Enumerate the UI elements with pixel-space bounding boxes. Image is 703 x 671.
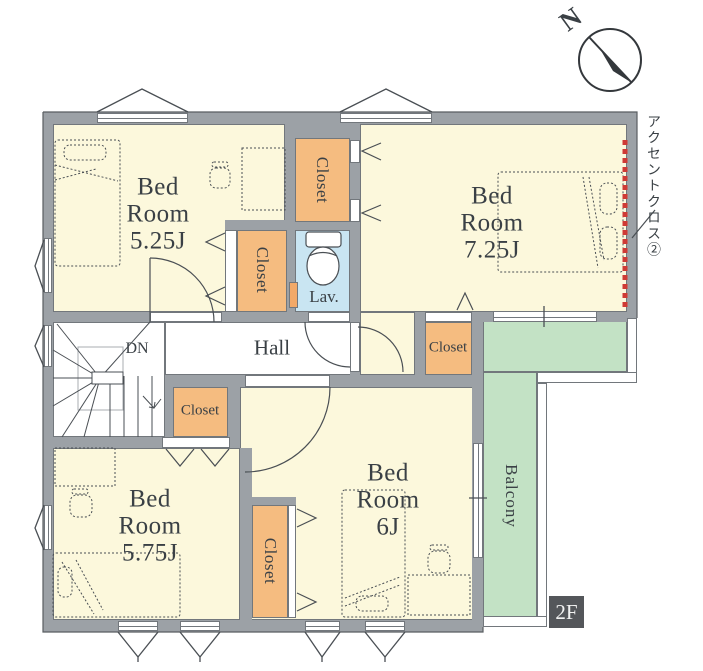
closet-label-bedroom-d: Closet [260,538,280,584]
bedroom-b-line2: Room [460,210,523,237]
closet-label-north-middle: Closet [312,157,332,203]
bedroom-d-line1: Bed [356,460,419,487]
bedroom-c-size: 5.75J [118,540,181,567]
bedroom-a-size: 5.25J [126,228,189,255]
closet-label-bedroom-b: Closet [429,340,467,357]
desk-icon-bedroom-a [210,148,285,210]
desk-icon-bedroom-d [408,545,470,615]
floor-badge: 2F [549,596,584,628]
closet-door-marks [166,143,473,611]
bedroom-a-line2: Room [126,201,189,228]
floor-plan-canvas: N Bed Room 5.25J Bed Room 7.25J Bed Room… [0,0,703,671]
bedroom-d-door-arc [245,387,330,472]
bedroom-b-label: Bed Room 7.25J [460,183,523,264]
bedroom-c-line2: Room [118,513,181,540]
bedroom-d-label: Bed Room 6J [356,460,419,541]
bedroom-a-door-arc [150,258,214,322]
bedroom-b-line1: Bed [460,183,523,210]
compass-icon [579,29,641,91]
stairs-dn-label: DN [125,340,148,358]
bedroom-b-size: 7.25J [460,237,523,264]
door-arcs [150,258,403,472]
bedroom-a-line1: Bed [126,174,189,201]
balcony-label: Balcony [501,464,521,528]
bedroom-c-line1: Bed [118,486,181,513]
bedroom-a-label: Bed Room 5.25J [126,174,189,255]
bedroom-d-size: 6J [356,514,419,541]
bedroom-b-door-arc [358,327,403,372]
hall-label: Hall [254,336,290,361]
desk-icon-bedroom-c [55,448,115,517]
floorplan-linework [0,0,703,671]
accent-cross-annotation: アクセントクロス② [645,114,659,349]
closet-label-bedroom-a: Closet [252,247,272,293]
closet-label-hall: Closet [181,403,219,420]
lavatory-label: Lav. [309,287,339,307]
bedroom-c-label: Bed Room 5.75J [118,486,181,567]
bed-icon-bedroom-a [55,140,120,266]
bedroom-d-line2: Room [356,487,419,514]
toilet-icon [306,232,341,285]
lavatory-door-arc [305,322,350,367]
